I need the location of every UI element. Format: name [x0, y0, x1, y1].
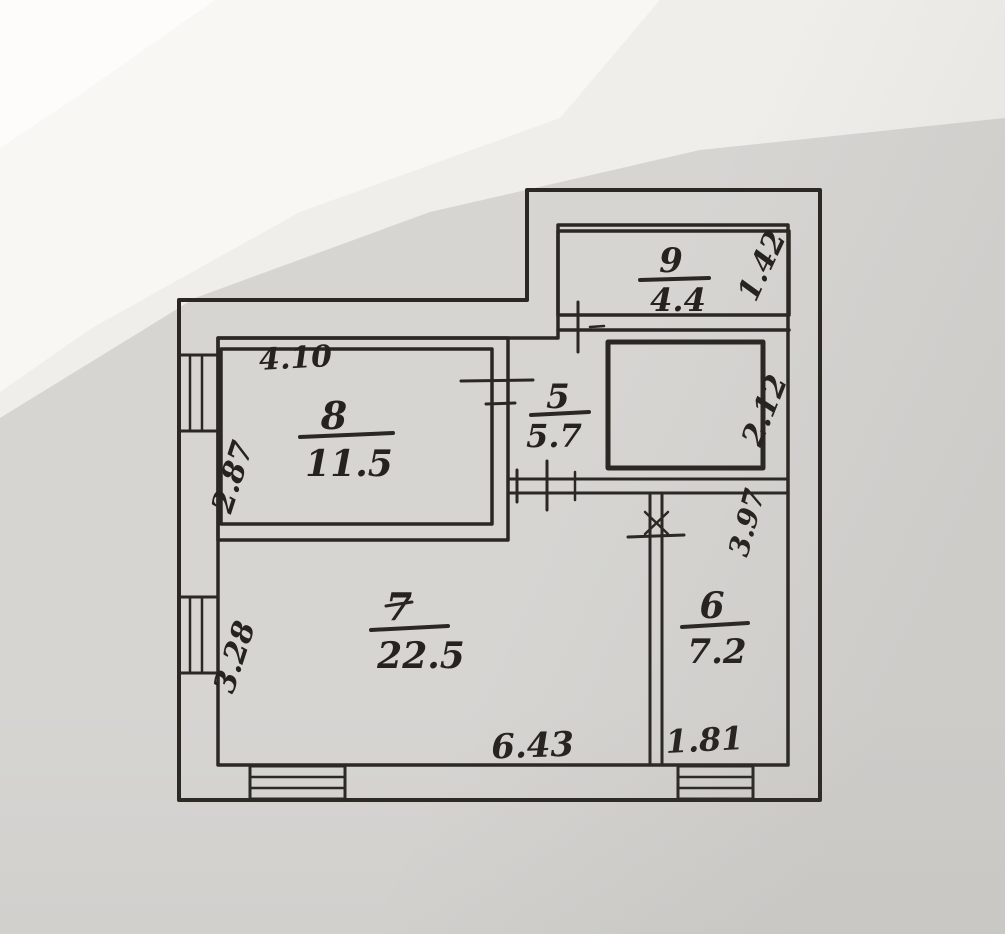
scanned-floor-plan-page: 9 4.4 8 11.5 5 5.7 7 22.5 6	[0, 0, 1005, 934]
room-6-area: 7.2	[687, 632, 746, 672]
dim-room8-depth: 2.87	[205, 437, 261, 518]
room-9-fraction-line	[640, 278, 709, 280]
window-frame	[678, 766, 753, 799]
window-room6-bottom	[678, 766, 753, 799]
room-9-area: 4.4	[650, 281, 706, 319]
window-frame	[179, 355, 218, 431]
room-labels: 9 4.4 8 11.5 5 5.7 7 22.5 6	[300, 241, 748, 677]
room-5-fraction-line	[531, 412, 589, 415]
room-5-label: 5 5.7	[526, 377, 589, 455]
window-room8-left	[179, 355, 218, 431]
dimension-labels: 4.10 2.87 3.28 6.43 1.81 1.42 2.12 3.97	[205, 225, 795, 767]
dim-room9-depth: 1.42	[731, 225, 794, 306]
divider-door-tick	[628, 535, 684, 537]
floor-plan-drawing: 9 4.4 8 11.5 5 5.7 7 22.5 6	[0, 0, 1005, 934]
room-9-door-tick-small	[590, 326, 604, 327]
room-8-door-tick-long	[461, 380, 533, 381]
room-9-number: 9	[659, 241, 683, 281]
dim-room7-width: 6.43	[491, 725, 575, 768]
room-7-fraction-line	[371, 626, 448, 630]
divider-wall-band	[650, 493, 662, 765]
room-8-label: 8 11.5	[300, 393, 393, 485]
room-5-number: 5	[546, 377, 570, 417]
dim-bath-depth: 2.12	[735, 370, 795, 452]
dim-room6-width: 1.81	[665, 719, 745, 761]
room-8-fraction-line	[300, 433, 393, 437]
window-room7-left	[179, 597, 218, 673]
room-8-number: 8	[320, 393, 347, 438]
room-6-label: 6 7.2	[682, 585, 748, 672]
room-7-area: 22.5	[376, 635, 465, 677]
window-frame	[250, 766, 345, 799]
dim-right-mid: 3.97	[722, 485, 772, 560]
room-6-fraction-line	[682, 623, 748, 627]
window-room7-bottom	[250, 766, 345, 799]
outer-wall-band	[179, 190, 820, 800]
room-5-area: 5.7	[526, 417, 582, 455]
outer-walls	[179, 190, 820, 800]
room-7-label: 7 22.5	[371, 584, 465, 677]
room-9-label: 9 4.4	[640, 241, 709, 319]
room-8-area: 11.5	[305, 443, 393, 485]
window-frame	[179, 597, 218, 673]
room-8-door-tick-short	[486, 403, 515, 404]
dim-room7-depth: 3.28	[207, 617, 263, 697]
bathroom-box	[608, 342, 763, 468]
room-6-number: 6	[699, 585, 724, 627]
dim-room8-width: 4.10	[258, 339, 333, 378]
